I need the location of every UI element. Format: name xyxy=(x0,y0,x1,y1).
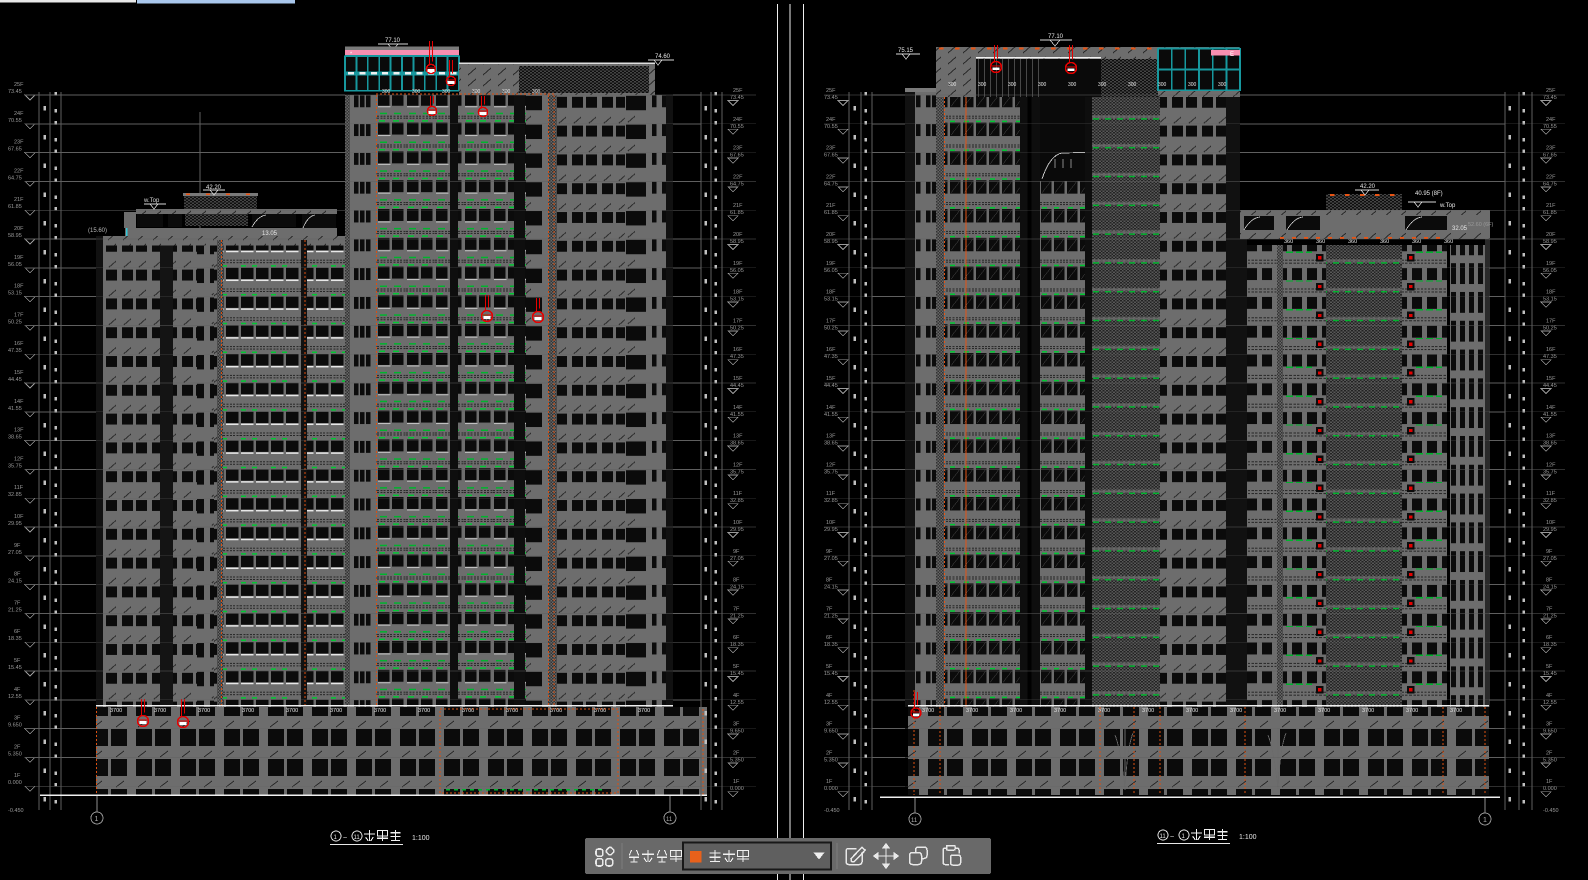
svg-text:27.05: 27.05 xyxy=(824,556,838,562)
svg-text:3F: 3F xyxy=(14,716,21,722)
svg-text:25F: 25F xyxy=(14,82,24,88)
svg-text:35.75: 35.75 xyxy=(824,469,838,475)
svg-text:10F: 10F xyxy=(826,520,836,526)
svg-text:52.60 (6F): 52.60 (6F) xyxy=(1468,222,1494,228)
svg-text:17F: 17F xyxy=(826,318,836,324)
svg-text:3700: 3700 xyxy=(198,708,210,714)
svg-text:11: 11 xyxy=(1160,834,1167,840)
svg-text:11F: 11F xyxy=(1546,491,1556,497)
svg-text:360: 360 xyxy=(1444,239,1453,245)
svg-text:70.55: 70.55 xyxy=(824,124,838,130)
svg-text:44.45: 44.45 xyxy=(8,377,22,383)
svg-text:18.35: 18.35 xyxy=(8,636,22,642)
svg-text:21.25: 21.25 xyxy=(824,613,838,619)
svg-text:5F: 5F xyxy=(1546,664,1553,670)
svg-text:9.650: 9.650 xyxy=(8,723,22,729)
svg-text:~: ~ xyxy=(1170,834,1174,841)
svg-text:4F: 4F xyxy=(14,687,21,693)
svg-text:41.55: 41.55 xyxy=(824,412,838,418)
svg-text:20F: 20F xyxy=(826,232,836,238)
svg-text:29.95: 29.95 xyxy=(824,527,838,533)
svg-text:5F: 5F xyxy=(826,664,833,670)
svg-text:~: ~ xyxy=(343,835,347,842)
svg-text:41.55: 41.55 xyxy=(8,406,22,412)
svg-text:11F: 11F xyxy=(14,485,24,491)
svg-text:5F: 5F xyxy=(733,664,740,670)
svg-text:73.45: 73.45 xyxy=(824,95,838,101)
svg-text:3700: 3700 xyxy=(418,708,430,714)
svg-text:3700: 3700 xyxy=(374,708,386,714)
svg-text:360: 360 xyxy=(1284,239,1293,245)
svg-text:9.650: 9.650 xyxy=(824,729,838,735)
svg-text:4F: 4F xyxy=(733,693,740,699)
svg-text:8F: 8F xyxy=(733,578,740,584)
svg-text:(15.60): (15.60) xyxy=(88,228,107,234)
svg-text:32.05: 32.05 xyxy=(1452,226,1468,232)
svg-text:1: 1 xyxy=(95,816,99,823)
svg-text:47.35: 47.35 xyxy=(824,354,838,360)
svg-text:53.15: 53.15 xyxy=(8,291,22,297)
svg-text:21F: 21F xyxy=(826,203,836,209)
svg-text:3700: 3700 xyxy=(1142,708,1154,714)
svg-text:2F: 2F xyxy=(733,750,740,756)
svg-text:6F: 6F xyxy=(826,635,833,641)
svg-text:19F: 19F xyxy=(733,261,743,267)
svg-text:2F: 2F xyxy=(1546,750,1553,756)
svg-text:300: 300 xyxy=(1008,82,1017,88)
svg-text:3700: 3700 xyxy=(1450,708,1462,714)
svg-text:50.25: 50.25 xyxy=(8,319,22,325)
svg-text:17F: 17F xyxy=(733,318,743,324)
svg-text:7F: 7F xyxy=(826,606,833,612)
svg-text:300: 300 xyxy=(1128,82,1137,88)
svg-text:3700: 3700 xyxy=(110,708,122,714)
svg-text:77.10: 77.10 xyxy=(385,38,401,44)
svg-text:3700: 3700 xyxy=(1362,708,1374,714)
svg-text:10F: 10F xyxy=(14,514,24,520)
svg-text:2F: 2F xyxy=(826,750,833,756)
svg-text:21F: 21F xyxy=(1546,203,1556,209)
svg-text:3700: 3700 xyxy=(330,708,342,714)
svg-text:24F: 24F xyxy=(733,117,743,123)
svg-text:10F: 10F xyxy=(1546,520,1556,526)
svg-text:58.95: 58.95 xyxy=(8,233,22,239)
svg-text:70.55: 70.55 xyxy=(8,118,22,124)
svg-text:9F: 9F xyxy=(14,543,21,549)
svg-text:1F: 1F xyxy=(733,779,740,785)
svg-text:3700: 3700 xyxy=(1010,708,1022,714)
svg-text:19F: 19F xyxy=(826,261,836,267)
svg-text:4F: 4F xyxy=(826,693,833,699)
svg-text:12F: 12F xyxy=(1546,462,1556,468)
svg-text:300: 300 xyxy=(1038,82,1047,88)
svg-text:1: 1 xyxy=(1483,817,1487,824)
svg-text:21F: 21F xyxy=(733,203,743,209)
svg-text:15F: 15F xyxy=(14,370,24,376)
svg-text:300: 300 xyxy=(978,82,987,88)
svg-text:5.350: 5.350 xyxy=(824,757,838,763)
svg-text:14F: 14F xyxy=(733,405,743,411)
svg-text:13F: 13F xyxy=(826,434,836,440)
svg-text:22F: 22F xyxy=(733,174,743,180)
svg-text:2F: 2F xyxy=(14,744,21,750)
svg-text:67.65: 67.65 xyxy=(824,153,838,159)
svg-text:22F: 22F xyxy=(1546,174,1556,180)
svg-text:7F: 7F xyxy=(14,600,21,606)
svg-text:24F: 24F xyxy=(1546,117,1556,123)
svg-text:25F: 25F xyxy=(826,88,836,94)
svg-text:360: 360 xyxy=(1380,239,1389,245)
svg-text:18F: 18F xyxy=(826,290,836,296)
svg-text:3700: 3700 xyxy=(1318,708,1330,714)
svg-text:18.35: 18.35 xyxy=(824,642,838,648)
svg-text:300: 300 xyxy=(1098,82,1107,88)
svg-text:7F: 7F xyxy=(733,606,740,612)
svg-text:3F: 3F xyxy=(826,722,833,728)
svg-text:18F: 18F xyxy=(1546,290,1556,296)
svg-text:24.15: 24.15 xyxy=(824,585,838,591)
svg-text:73.45: 73.45 xyxy=(8,89,22,95)
svg-text:6F: 6F xyxy=(733,635,740,641)
svg-text:77.10: 77.10 xyxy=(1048,34,1064,40)
svg-text:3700: 3700 xyxy=(154,708,166,714)
svg-text:20F: 20F xyxy=(1546,232,1556,238)
svg-text:74.60: 74.60 xyxy=(655,54,671,60)
svg-text:8F: 8F xyxy=(1546,578,1553,584)
svg-text:w.Top: w.Top xyxy=(143,198,160,204)
svg-text:1F: 1F xyxy=(826,779,833,785)
svg-text:9F: 9F xyxy=(733,549,740,555)
svg-text:3700: 3700 xyxy=(638,708,650,714)
svg-text:15F: 15F xyxy=(733,376,743,382)
svg-text:10F: 10F xyxy=(733,520,743,526)
svg-text:29.95: 29.95 xyxy=(8,521,22,527)
svg-text:38.65: 38.65 xyxy=(8,435,22,441)
svg-text:13F: 13F xyxy=(14,428,24,434)
svg-text:300: 300 xyxy=(1188,82,1197,88)
svg-text:21.25: 21.25 xyxy=(8,607,22,613)
svg-text:12.55: 12.55 xyxy=(8,694,22,700)
svg-text:15F: 15F xyxy=(1546,376,1556,382)
svg-text:19F: 19F xyxy=(14,255,24,261)
svg-text:16F: 16F xyxy=(1546,347,1556,353)
svg-text:360: 360 xyxy=(1412,239,1421,245)
svg-text:14F: 14F xyxy=(1546,405,1556,411)
svg-text:32.85: 32.85 xyxy=(824,498,838,504)
svg-text:7F: 7F xyxy=(1546,606,1553,612)
svg-text:64.75: 64.75 xyxy=(8,175,22,181)
svg-text:1F: 1F xyxy=(1546,779,1553,785)
svg-text:6F: 6F xyxy=(1546,635,1553,641)
svg-text:8F: 8F xyxy=(826,578,833,584)
svg-text:25F: 25F xyxy=(733,88,743,94)
svg-text:14F: 14F xyxy=(14,399,24,405)
svg-text:47.35: 47.35 xyxy=(8,348,22,354)
svg-text:300: 300 xyxy=(948,82,957,88)
svg-text:11F: 11F xyxy=(733,491,743,497)
svg-text:9F: 9F xyxy=(826,549,833,555)
svg-text:21F: 21F xyxy=(14,197,24,203)
svg-text:20F: 20F xyxy=(14,226,24,232)
svg-text:1F: 1F xyxy=(14,773,21,779)
svg-text:360: 360 xyxy=(1316,239,1325,245)
svg-text:1:100: 1:100 xyxy=(412,835,430,842)
svg-text:17F: 17F xyxy=(1546,318,1556,324)
svg-text:3700: 3700 xyxy=(1230,708,1242,714)
svg-text:56.05: 56.05 xyxy=(824,268,838,274)
svg-text:20F: 20F xyxy=(733,232,743,238)
svg-text:42.20: 42.20 xyxy=(1360,184,1376,190)
svg-text:18F: 18F xyxy=(14,284,24,290)
svg-text:15F: 15F xyxy=(826,376,836,382)
svg-text:13F: 13F xyxy=(1546,434,1556,440)
svg-text:22F: 22F xyxy=(826,174,836,180)
svg-text:19F: 19F xyxy=(1546,261,1556,267)
svg-text:12F: 12F xyxy=(733,462,743,468)
svg-text:23F: 23F xyxy=(733,146,743,152)
svg-text:11: 11 xyxy=(911,818,918,824)
svg-text:61.85: 61.85 xyxy=(8,204,22,210)
svg-text:3F: 3F xyxy=(733,722,740,728)
svg-text:6F: 6F xyxy=(14,629,21,635)
svg-text:3700: 3700 xyxy=(1186,708,1198,714)
svg-text:3700: 3700 xyxy=(966,708,978,714)
svg-text:16F: 16F xyxy=(14,341,24,347)
svg-text:32.85: 32.85 xyxy=(8,492,22,498)
svg-text:18F: 18F xyxy=(733,290,743,296)
svg-text:17F: 17F xyxy=(14,312,24,318)
svg-text:23F: 23F xyxy=(14,140,24,146)
svg-text:11: 11 xyxy=(666,817,673,823)
svg-text:-0.450: -0.450 xyxy=(8,808,24,814)
svg-text:13F: 13F xyxy=(733,434,743,440)
svg-text:38.65: 38.65 xyxy=(824,441,838,447)
svg-text:360: 360 xyxy=(1348,239,1357,245)
svg-text:300: 300 xyxy=(1218,82,1227,88)
svg-text:67.65: 67.65 xyxy=(8,147,22,153)
svg-text:8F: 8F xyxy=(14,572,21,578)
svg-text:5.350: 5.350 xyxy=(8,751,22,757)
svg-text:22F: 22F xyxy=(14,168,24,174)
svg-text:44.45: 44.45 xyxy=(824,383,838,389)
svg-text:4F: 4F xyxy=(1546,693,1553,699)
svg-text:23F: 23F xyxy=(1546,146,1556,152)
svg-text:16F: 16F xyxy=(733,347,743,353)
svg-text:300: 300 xyxy=(1158,82,1167,88)
svg-text:12F: 12F xyxy=(14,456,24,462)
svg-text:-0.450: -0.450 xyxy=(1543,808,1559,814)
svg-text:3700: 3700 xyxy=(1054,708,1066,714)
svg-text:27.05: 27.05 xyxy=(8,550,22,556)
svg-text:58.95: 58.95 xyxy=(824,239,838,245)
svg-text:0.000: 0.000 xyxy=(824,786,838,792)
svg-text:-0.450: -0.450 xyxy=(824,808,840,814)
svg-text:64.75: 64.75 xyxy=(824,181,838,187)
svg-text:56.05: 56.05 xyxy=(8,262,22,268)
svg-text:15.45: 15.45 xyxy=(824,671,838,677)
svg-text:25F: 25F xyxy=(1546,88,1556,94)
svg-text:3700: 3700 xyxy=(286,708,298,714)
svg-text:9F: 9F xyxy=(1546,549,1553,555)
svg-text:3700: 3700 xyxy=(242,708,254,714)
svg-text:11: 11 xyxy=(354,835,361,841)
svg-text:14F: 14F xyxy=(826,405,836,411)
svg-text:w.Top: w.Top xyxy=(1439,203,1456,209)
svg-text:3700: 3700 xyxy=(1406,708,1418,714)
svg-text:24F: 24F xyxy=(826,117,836,123)
svg-text:15.45: 15.45 xyxy=(8,665,22,671)
svg-text:61.85: 61.85 xyxy=(824,210,838,216)
svg-text:12.55: 12.55 xyxy=(824,700,838,706)
svg-text:11F: 11F xyxy=(826,491,836,497)
svg-text:3700: 3700 xyxy=(1274,708,1286,714)
svg-text:12F: 12F xyxy=(826,462,836,468)
svg-text:50.25: 50.25 xyxy=(824,325,838,331)
svg-text:24F: 24F xyxy=(14,111,24,117)
svg-text:3700: 3700 xyxy=(922,708,934,714)
svg-text:0.000: 0.000 xyxy=(8,780,22,786)
svg-text:E: E xyxy=(1230,52,1234,58)
svg-text:53.15: 53.15 xyxy=(824,297,838,303)
svg-text:16F: 16F xyxy=(826,347,836,353)
svg-text:1:100: 1:100 xyxy=(1239,834,1257,841)
svg-text:5F: 5F xyxy=(14,658,21,664)
svg-text:35.75: 35.75 xyxy=(8,463,22,469)
svg-text:75.15: 75.15 xyxy=(898,48,914,54)
svg-text:300: 300 xyxy=(1068,82,1077,88)
svg-text:24.15: 24.15 xyxy=(8,579,22,585)
svg-text:23F: 23F xyxy=(826,146,836,152)
svg-text:40.95 (8F): 40.95 (8F) xyxy=(1415,191,1443,197)
svg-text:3F: 3F xyxy=(1546,722,1553,728)
